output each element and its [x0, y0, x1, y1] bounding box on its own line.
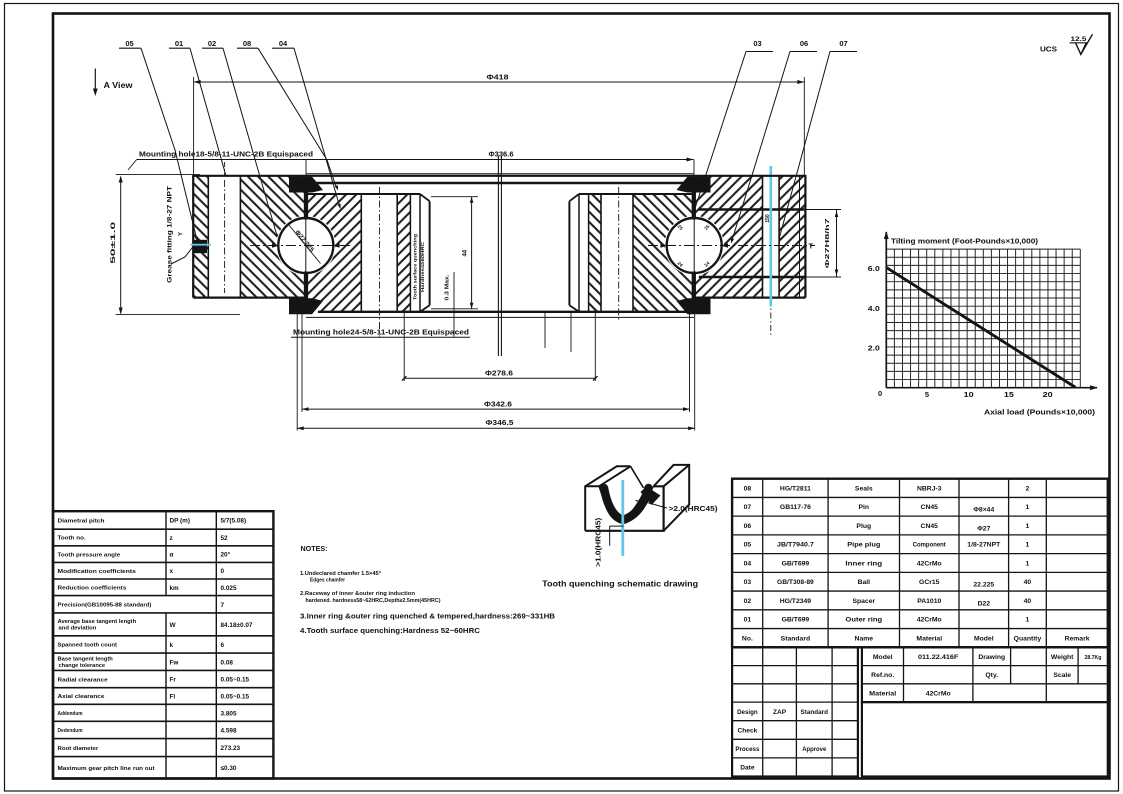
svg-text:7: 7: [221, 602, 225, 609]
svg-text:Tooth pressure angle: Tooth pressure angle: [58, 552, 121, 558]
svg-text:Pin: Pin: [859, 504, 870, 511]
svg-text:≤0.30: ≤0.30: [221, 765, 237, 772]
svg-text:1: 1: [1026, 617, 1030, 624]
svg-text:Spacer: Spacer: [852, 598, 875, 605]
svg-text:x: x: [170, 568, 174, 575]
svg-text:Fl: Fl: [170, 694, 176, 701]
svg-text:A View: A View: [104, 81, 134, 90]
svg-text:Process: Process: [735, 746, 759, 753]
svg-text:Inner ring: Inner ring: [845, 560, 882, 567]
svg-text:Drawing: Drawing: [978, 654, 1005, 661]
svg-text:6.0: 6.0: [868, 264, 880, 273]
svg-text:5: 5: [925, 390, 929, 399]
svg-text:0.05~0.15: 0.05~0.15: [221, 677, 250, 684]
svg-text:Grease fitting 1/8-27 NPT: Grease fitting 1/8-27 NPT: [167, 186, 173, 283]
svg-text:50±1.0: 50±1.0: [111, 220, 117, 264]
svg-text:Weight: Weight: [1051, 654, 1074, 661]
svg-text:Seals: Seals: [855, 485, 873, 492]
svg-text:04: 04: [279, 39, 288, 48]
svg-text:Axial load (Pounds×10,000): Axial load (Pounds×10,000): [984, 410, 1095, 417]
svg-text:D22: D22: [978, 600, 991, 607]
svg-text:CN45: CN45: [921, 523, 939, 530]
svg-text:Dedendum: Dedendum: [58, 728, 83, 734]
svg-text:3.Inner ring &outer ring quenc: 3.Inner ring &outer ring quenched & temp…: [300, 613, 555, 620]
svg-text:07: 07: [744, 504, 752, 511]
svg-text:T: T: [809, 242, 814, 251]
svg-text:JB/T7940.7: JB/T7940.7: [777, 542, 814, 549]
svg-text:GB/T699: GB/T699: [782, 560, 810, 567]
svg-text:Quantity: Quantity: [1014, 635, 1042, 642]
svg-text:42CrMo: 42CrMo: [926, 690, 951, 697]
svg-text:03: 03: [753, 39, 761, 48]
svg-text:Y: Y: [179, 232, 185, 236]
svg-text:52: 52: [221, 535, 229, 542]
svg-text:011.22.416F: 011.22.416F: [918, 654, 958, 661]
svg-text:>1.0(HRC45): >1.0(HRC45): [596, 518, 603, 567]
svg-text:GB/T308-89: GB/T308-89: [777, 579, 814, 586]
svg-text:0: 0: [221, 568, 225, 575]
svg-text:Root diameter: Root diameter: [58, 746, 99, 752]
svg-text:Hardness≥60HRC: Hardness≥60HRC: [420, 241, 426, 292]
svg-text:42CrMo: 42CrMo: [917, 617, 942, 624]
svg-text:3.805: 3.805: [221, 710, 237, 717]
svg-text:Spanned tooth count: Spanned tooth count: [58, 643, 118, 649]
svg-text:Φ27H8/h7: Φ27H8/h7: [825, 218, 831, 268]
svg-text:Plug: Plug: [856, 523, 871, 530]
svg-text:1: 1: [1026, 504, 1030, 511]
svg-text:20°: 20°: [221, 551, 231, 559]
svg-text:Φ8×44: Φ8×44: [973, 507, 994, 514]
svg-text:z: z: [170, 535, 173, 542]
svg-text:Diametral pitch: Diametral pitch: [58, 518, 105, 524]
svg-text:HG/T2349: HG/T2349: [780, 598, 812, 605]
svg-text:10: 10: [964, 390, 974, 399]
svg-text:Approve: Approve: [802, 746, 826, 753]
svg-text:Remark: Remark: [1065, 635, 1090, 642]
svg-text:1: 1: [1026, 542, 1030, 549]
svg-text:Φ342.6: Φ342.6: [484, 401, 512, 408]
svg-text:02: 02: [208, 39, 216, 48]
svg-text:Φ278.6: Φ278.6: [485, 370, 513, 377]
svg-text:22.225: 22.225: [973, 582, 994, 589]
svg-text:1.Undeclared chamfer 1.5×45°: 1.Undeclared chamfer 1.5×45°: [300, 571, 382, 577]
svg-text:Axial clearance: Axial clearance: [58, 694, 106, 700]
svg-text:Radial clearance: Radial clearance: [58, 677, 109, 683]
svg-text:4.598: 4.598: [221, 727, 237, 734]
svg-text:NBRJ-3: NBRJ-3: [917, 485, 942, 492]
svg-text:Φ346.5: Φ346.5: [486, 420, 514, 427]
svg-text:α: α: [170, 552, 174, 559]
svg-text:05: 05: [744, 542, 752, 549]
svg-text:20: 20: [1043, 390, 1053, 399]
svg-text:08: 08: [744, 485, 752, 492]
svg-text:Standard: Standard: [801, 709, 828, 716]
svg-text:Precision(GB10095-88 standard): Precision(GB10095-88 standard): [58, 602, 152, 608]
svg-text:28.7Kg: 28.7Kg: [1084, 655, 1101, 661]
svg-text:Reduction coefficients: Reduction coefficients: [58, 586, 127, 592]
svg-text:273.23: 273.23: [221, 745, 241, 752]
svg-text:Fr: Fr: [170, 677, 177, 684]
svg-text:Edges chamfer: Edges chamfer: [310, 578, 346, 584]
svg-text:Ball: Ball: [858, 579, 871, 586]
svg-text:4.Tooth surface quenching:Hard: 4.Tooth surface quenching:Hardness 52~60…: [300, 628, 480, 635]
svg-text:Fw: Fw: [170, 659, 179, 666]
svg-text:Date: Date: [740, 765, 755, 772]
svg-text:Standard: Standard: [781, 635, 810, 642]
svg-text:2: 2: [1026, 485, 1030, 492]
svg-text:GB117-76: GB117-76: [780, 504, 811, 511]
svg-text:Component: Component: [913, 542, 947, 549]
svg-text:Material: Material: [916, 635, 942, 642]
svg-text:05: 05: [125, 39, 133, 48]
svg-text:5/7(5.08): 5/7(5.08): [221, 518, 247, 525]
svg-text:DP (m): DP (m): [170, 518, 190, 525]
svg-text:0.08: 0.08: [221, 659, 234, 666]
svg-text:08: 08: [243, 39, 251, 48]
svg-text:Model: Model: [974, 635, 994, 642]
svg-text:Pipe plug: Pipe plug: [847, 542, 880, 549]
svg-text:2.Raceway of inner &outer ring: 2.Raceway of inner &outer ring induction: [300, 591, 415, 597]
svg-text:W: W: [170, 622, 177, 629]
svg-text:40: 40: [1024, 598, 1032, 605]
svg-text:Maximum gear pitch line run ou: Maximum gear pitch line run out: [58, 766, 155, 772]
svg-text:Tooth no.: Tooth no.: [58, 536, 87, 542]
svg-text:Qty.: Qty.: [985, 672, 998, 679]
svg-text:06: 06: [800, 39, 808, 48]
svg-text:Mounting hole18-5/8-11-UNC-2B: Mounting hole18-5/8-11-UNC-2B Equispaced: [139, 150, 313, 159]
svg-text:UCS: UCS: [1040, 45, 1057, 54]
svg-text:hardened. hardness58~62HRC,Dep: hardened. hardness58~62HRC,Depth≥2.5mm(4…: [306, 598, 441, 604]
svg-text:GCr15: GCr15: [919, 579, 940, 586]
svg-text:44: 44: [462, 249, 468, 256]
svg-text:GB/T699: GB/T699: [782, 617, 810, 624]
svg-text:15: 15: [1004, 390, 1014, 399]
svg-text:84.18±0.07: 84.18±0.07: [221, 622, 253, 629]
svg-text:PA1010: PA1010: [917, 598, 941, 605]
svg-text:42CrMo: 42CrMo: [917, 560, 942, 567]
svg-text:ZAP: ZAP: [773, 709, 787, 716]
svg-text:1: 1: [1026, 523, 1030, 530]
svg-text:12.5: 12.5: [1071, 36, 1087, 43]
svg-text:Φ418: Φ418: [487, 75, 509, 82]
svg-text:0: 0: [878, 389, 882, 398]
svg-text:Name: Name: [855, 635, 874, 642]
svg-text:Tooth surface quenching: Tooth surface quenching: [413, 234, 419, 300]
svg-text:0.025: 0.025: [221, 585, 237, 592]
svg-text:03: 03: [744, 579, 752, 586]
svg-text:01: 01: [175, 39, 183, 48]
svg-text:Tilting moment (Foot-Pounds×10: Tilting moment (Foot-Pounds×10,000): [891, 238, 1038, 245]
svg-text:Material: Material: [869, 690, 896, 697]
svg-text:HG/T2811: HG/T2811: [780, 485, 811, 492]
svg-text:>2.0(HRC45): >2.0(HRC45): [669, 506, 718, 513]
svg-text:4.0: 4.0: [868, 304, 880, 313]
svg-text:CN45: CN45: [921, 504, 939, 511]
svg-text:Outer ring: Outer ring: [845, 617, 882, 624]
svg-text:40: 40: [1024, 579, 1032, 586]
svg-text:06: 06: [744, 523, 752, 530]
svg-text:02: 02: [744, 598, 752, 605]
svg-text:k: k: [170, 642, 174, 649]
svg-text:change tolerance: change tolerance: [59, 663, 106, 669]
svg-text:Tooth quenching schematic draw: Tooth quenching schematic drawing: [542, 580, 698, 589]
svg-text:Check: Check: [738, 727, 758, 734]
svg-text:6: 6: [221, 642, 225, 649]
svg-text:NOTES:: NOTES:: [301, 544, 328, 553]
svg-text:No.: No.: [742, 635, 753, 642]
svg-text:2.0: 2.0: [868, 344, 880, 353]
svg-text:04: 04: [744, 560, 752, 567]
svg-text:Design: Design: [737, 709, 758, 716]
svg-text:01: 01: [744, 617, 752, 624]
svg-text:07: 07: [839, 39, 847, 48]
svg-text:Average base tangent length: Average base tangent length: [58, 619, 137, 625]
svg-text:km: km: [170, 585, 180, 592]
svg-text:Addendum: Addendum: [58, 711, 83, 717]
svg-text:Mounting hole24-5/8-11-UNC-2B: Mounting hole24-5/8-11-UNC-2B Equispaced: [293, 328, 469, 337]
svg-text:Ref.no.: Ref.no.: [871, 672, 894, 679]
svg-text:Modification coefficients: Modification coefficients: [58, 569, 136, 575]
svg-text:1: 1: [1026, 560, 1030, 567]
svg-text:Φ27: Φ27: [977, 525, 990, 532]
svg-text:0.3 Max.: 0.3 Max.: [445, 274, 451, 301]
svg-text:and deviation: and deviation: [59, 625, 97, 631]
svg-text:0.05~0.15: 0.05~0.15: [221, 694, 250, 701]
svg-text:Model: Model: [873, 654, 893, 661]
svg-text:1/8-27NPT: 1/8-27NPT: [967, 542, 1001, 549]
svg-text:Base tangent length: Base tangent length: [58, 656, 114, 662]
svg-text:Scale: Scale: [1053, 672, 1071, 679]
